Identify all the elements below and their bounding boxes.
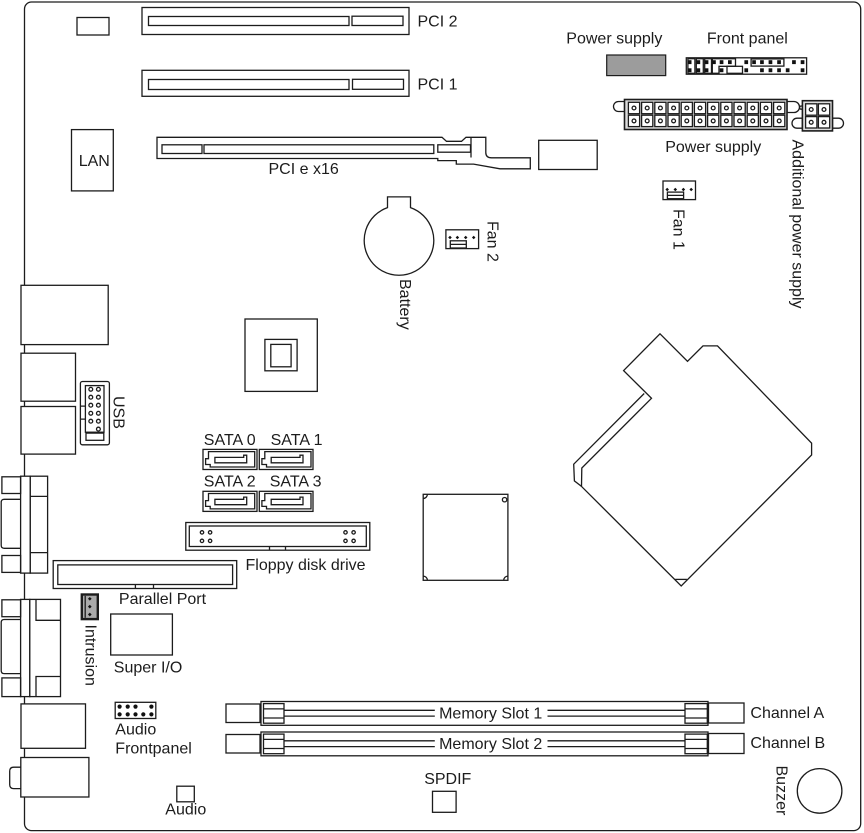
svg-text:SATA 1: SATA 1 <box>271 432 323 449</box>
svg-text:Intrusion: Intrusion <box>82 625 99 686</box>
svg-text:Additional power supply: Additional power supply <box>789 140 806 309</box>
svg-text:PCI e x16: PCI e x16 <box>269 161 339 178</box>
svg-text:SPDIF: SPDIF <box>424 771 471 788</box>
svg-text:PCI 2: PCI 2 <box>418 14 458 31</box>
svg-text:Front panel: Front panel <box>707 31 788 48</box>
svg-text:Fan 2: Fan 2 <box>484 221 501 262</box>
svg-text:Super I/O: Super I/O <box>114 659 182 676</box>
svg-text:Memory Slot 1: Memory Slot 1 <box>439 706 542 723</box>
svg-text:Channel B: Channel B <box>750 735 825 752</box>
svg-text:Power supply: Power supply <box>665 139 761 156</box>
svg-text:Frontpanel: Frontpanel <box>115 740 192 757</box>
svg-text:Buzzer: Buzzer <box>773 766 790 816</box>
svg-text:Audio: Audio <box>165 801 206 818</box>
svg-text:USB: USB <box>110 396 127 429</box>
svg-text:Audio: Audio <box>115 721 156 738</box>
svg-text:Channel A: Channel A <box>750 705 824 722</box>
svg-text:SATA 0: SATA 0 <box>204 432 256 449</box>
svg-text:Memory Slot 2: Memory Slot 2 <box>439 736 542 753</box>
svg-text:PCI 1: PCI 1 <box>418 77 458 94</box>
svg-text:Power supply: Power supply <box>566 31 662 48</box>
svg-text:LAN: LAN <box>79 153 110 170</box>
svg-text:Fan 1: Fan 1 <box>670 209 687 250</box>
svg-text:Floppy disk drive: Floppy disk drive <box>246 557 366 574</box>
svg-text:SATA 2: SATA 2 <box>204 473 256 490</box>
svg-text:SATA 3: SATA 3 <box>270 473 322 490</box>
svg-text:Battery: Battery <box>396 279 413 330</box>
svg-text:Parallel Port: Parallel Port <box>119 591 207 608</box>
